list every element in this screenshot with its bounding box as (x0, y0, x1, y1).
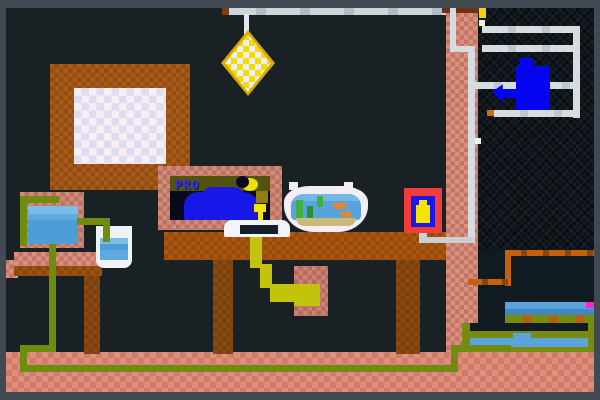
desk-leg-right (396, 260, 420, 354)
yellow-power-pack[interactable] (294, 284, 320, 306)
pillar-pipe-main (468, 46, 475, 243)
border-right (594, 0, 600, 400)
hanging-lamp[interactable] (225, 34, 271, 92)
screen-lightning-icon (254, 204, 266, 212)
pipe-shelf-bar-4 (494, 110, 580, 117)
green-cable-bucket-top (27, 196, 59, 203)
keyboard-keys (240, 225, 278, 234)
outlet-cable-horizontal (419, 237, 473, 243)
shelf-olive-band (505, 315, 594, 323)
screen-blue-blob (184, 192, 262, 220)
fishbowl-plant-1 (296, 200, 303, 218)
shelf-stack-dark-box (511, 256, 594, 302)
monitor-screen-text: PRO (175, 178, 200, 192)
side-table-top (14, 252, 102, 266)
pipe-nub (475, 138, 481, 144)
side-table-apron (14, 266, 102, 276)
water-bucket[interactable] (28, 206, 78, 244)
plug-icon-top (419, 200, 427, 206)
shelf-stack-frame-step (468, 279, 511, 285)
green-cable-riser-h (451, 345, 511, 352)
border-left (0, 0, 6, 400)
picture-canvas (74, 88, 166, 164)
fishbowl-sand (296, 218, 356, 226)
floor (6, 352, 594, 392)
pipe-shelf-bar-1 (482, 26, 580, 33)
green-cable-branch-v (103, 218, 110, 242)
side-table-leg (84, 276, 100, 354)
shelf-dark-band (470, 323, 588, 331)
plug-icon (416, 205, 430, 223)
fish-1 (334, 203, 346, 209)
screen-yellow-corner (256, 191, 268, 203)
desk-top (164, 232, 446, 260)
pipe-shelf-vertical (573, 26, 580, 118)
green-cable-main-vertical (49, 244, 56, 350)
scene-stage: PRO (0, 0, 600, 400)
pipe-orange-joint (487, 110, 494, 116)
border-top (0, 0, 600, 8)
fishbowl-plant-3 (317, 196, 323, 207)
green-cable-bucket-left (20, 196, 27, 246)
screen-moon-bite (236, 176, 249, 188)
magenta-pixel (586, 302, 594, 308)
fish-2 (341, 212, 351, 217)
blue-kettle[interactable] (516, 66, 550, 110)
green-cable-floor (20, 365, 458, 372)
fishbowl-plant-2 (307, 206, 313, 218)
border-bottom (0, 392, 600, 400)
shelf-water-band-1 (505, 302, 594, 309)
shelf-stack-frame-top (505, 250, 594, 256)
pipe-shelf-bar-2 (482, 45, 573, 52)
desk-leg-left (213, 260, 233, 354)
ceiling-rod (222, 8, 458, 15)
screen-lightning-tail (258, 212, 263, 220)
rod-bracket (222, 8, 229, 15)
